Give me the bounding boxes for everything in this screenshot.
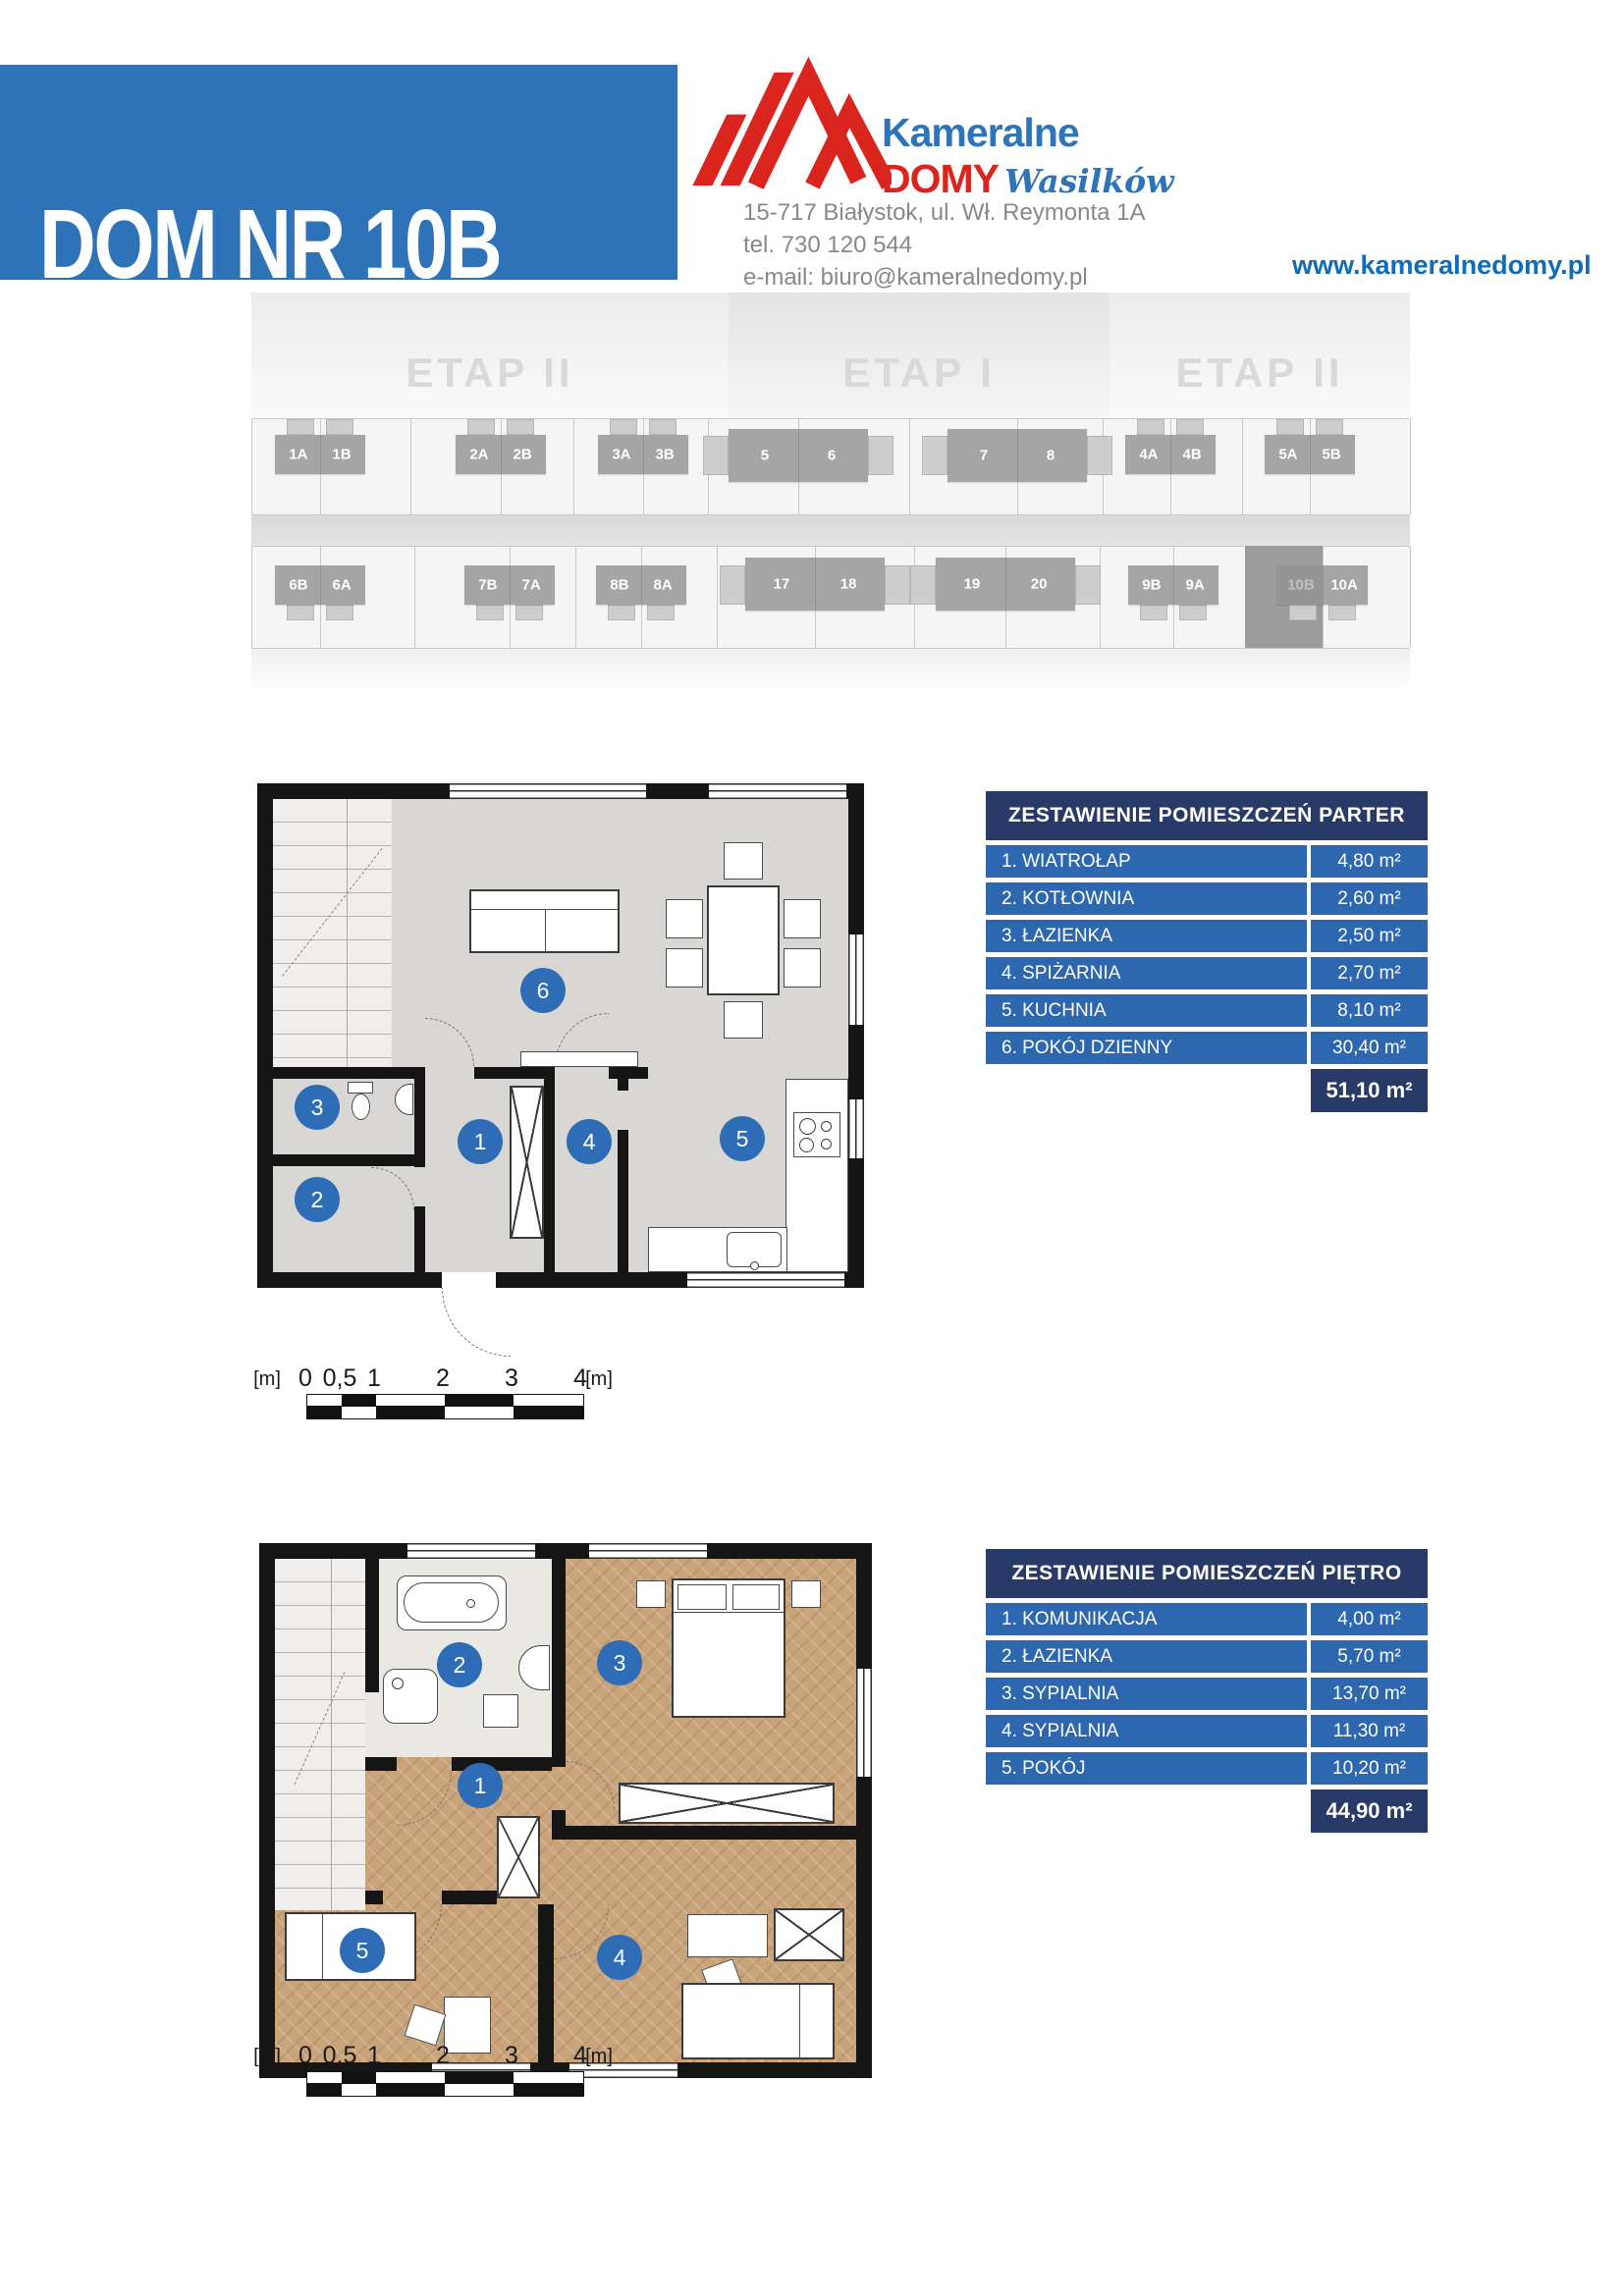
garage xyxy=(868,436,893,475)
wall xyxy=(552,1810,566,1840)
burner xyxy=(799,1138,814,1152)
garage xyxy=(885,565,910,605)
house-divider xyxy=(320,565,321,605)
scale-tick-label: 2 xyxy=(436,2042,450,2070)
plot-boundary-line xyxy=(251,418,1410,419)
house-7-8: 78 xyxy=(947,429,1087,482)
stage-label-etap-ii: ETAP II xyxy=(406,349,573,397)
room-table-pietro: ZESTAWIENIE POMIESZCZEŃ PIĘTRO 1. KOMUNI… xyxy=(986,1549,1428,1833)
room-number-badge: 3 xyxy=(295,1085,340,1130)
room-number-badge: 4 xyxy=(597,1935,642,1980)
house-19-20: 1920 xyxy=(936,558,1075,611)
nightstand xyxy=(791,1580,821,1608)
unit-label-8B: 8B xyxy=(610,577,628,594)
wall xyxy=(442,1891,497,1904)
desk xyxy=(687,1914,768,1957)
garage xyxy=(326,419,353,435)
unit-label-6: 6 xyxy=(828,448,836,464)
table-row: 1. WIATROŁAP4,80 m² xyxy=(986,845,1428,878)
house-9B-9A: 9B9A xyxy=(1128,565,1218,605)
logo-brand-top: Kameralne xyxy=(882,110,1174,156)
logo-domy: DOMY xyxy=(882,156,999,201)
garage xyxy=(647,605,675,620)
garage xyxy=(1176,419,1204,435)
staircase xyxy=(273,799,392,1067)
garage xyxy=(287,419,314,435)
scale-tick-label: 0,5 xyxy=(323,1364,357,1393)
sofa-cushion-line xyxy=(545,909,546,951)
garage xyxy=(1316,419,1343,435)
garage xyxy=(1328,605,1356,620)
chair xyxy=(724,1001,763,1039)
wall xyxy=(618,1130,628,1272)
room-name: 3. ŁAZIENKA xyxy=(986,920,1307,952)
unit-label-5A: 5A xyxy=(1278,447,1297,463)
scale-unit-label: [m] xyxy=(253,1368,281,1391)
faucet xyxy=(750,1261,759,1270)
garage xyxy=(1179,605,1207,620)
room-number-badge: 6 xyxy=(520,968,566,1013)
scale-bar-segment xyxy=(514,2084,583,2096)
sofa xyxy=(469,889,620,953)
plot-line xyxy=(414,546,415,648)
plot-line xyxy=(410,418,411,514)
plot-boundary-line xyxy=(251,648,1410,649)
table-parter-title: ZESTAWIENIE POMIESZCZEŃ PARTER xyxy=(986,791,1428,840)
wall xyxy=(259,1543,872,1559)
garage xyxy=(649,419,677,435)
plot-line xyxy=(1410,546,1411,648)
floor-plan-pietro xyxy=(259,1543,872,2078)
window xyxy=(848,934,864,1025)
plot-line xyxy=(575,546,576,648)
burner xyxy=(799,1118,816,1135)
scale-bar-segment xyxy=(342,2084,376,2096)
plot-line xyxy=(909,418,910,514)
tv-cabinet xyxy=(520,1051,638,1067)
garage xyxy=(1289,605,1317,620)
room-area: 2,50 m² xyxy=(1311,920,1428,952)
scale-bar-segment xyxy=(514,1407,583,1418)
unit-label-20: 20 xyxy=(1031,576,1048,593)
table-row: 2. KOTŁOWNIA2,60 m² xyxy=(986,882,1428,915)
room-name: 1. KOMUNIKACJA xyxy=(986,1603,1307,1635)
table-row: 5. POKÓJ10,20 m² xyxy=(986,1752,1428,1785)
nightstand xyxy=(636,1580,666,1608)
plots-fade xyxy=(251,648,1410,693)
scale-bar-row xyxy=(306,2083,584,2097)
room-number-badge: 5 xyxy=(720,1116,765,1161)
unit-label-8: 8 xyxy=(1047,448,1055,464)
plot-line xyxy=(251,418,252,514)
house-divider xyxy=(1170,435,1171,474)
room-number-badge: 1 xyxy=(458,1763,503,1808)
wall xyxy=(609,1067,648,1079)
table-row: 3. ŁAZIENKA2,50 m² xyxy=(986,920,1428,952)
unit-label-10A: 10A xyxy=(1330,577,1358,594)
scale-tick-label: 3 xyxy=(505,1364,518,1393)
unit-label-7A: 7A xyxy=(521,577,540,594)
page-title: DOM NR 10B xyxy=(39,188,500,301)
garage xyxy=(1276,419,1304,435)
roof-logo-icon xyxy=(687,37,892,202)
wall xyxy=(544,1079,555,1272)
stage-label-etap-ii: ETAP II xyxy=(1175,349,1343,397)
room-area: 8,10 m² xyxy=(1311,994,1428,1027)
room-number-badge: 1 xyxy=(458,1119,503,1164)
scale-unit-label: [m] xyxy=(585,2046,613,2068)
house-5A-5B: 5A5B xyxy=(1265,435,1355,474)
room-number-badge: 3 xyxy=(597,1640,642,1685)
garage xyxy=(922,436,947,475)
unit-label-18: 18 xyxy=(840,576,857,593)
house-divider xyxy=(510,565,511,605)
scale-bar-segment xyxy=(376,1407,445,1418)
room-area: 2,60 m² xyxy=(1311,882,1428,915)
scale-bar-segment xyxy=(307,2084,342,2096)
room-name: 5. KUCHNIA xyxy=(986,994,1307,1027)
unit-label-1B: 1B xyxy=(332,447,351,463)
wall xyxy=(365,1559,379,1692)
window xyxy=(589,1543,707,1559)
garage xyxy=(515,605,543,620)
chair xyxy=(784,899,821,938)
room-number-badge: 2 xyxy=(437,1642,482,1687)
scale-bar-segment xyxy=(445,1407,514,1418)
room-number-badge: 5 xyxy=(340,1928,385,1973)
pillow xyxy=(732,1584,780,1610)
stair-cut-line xyxy=(282,848,382,976)
garage xyxy=(910,565,936,605)
stair-divider xyxy=(331,1559,332,1910)
wall xyxy=(259,1543,275,2078)
phone-line: tel. 730 120 544 xyxy=(743,229,1146,261)
house-divider xyxy=(798,429,799,482)
chair xyxy=(724,842,763,880)
house-divider xyxy=(1323,565,1324,605)
plot-line xyxy=(573,418,574,514)
garage xyxy=(287,605,314,620)
table-row: 4. SPIŻARNIA2,70 m² xyxy=(986,957,1428,989)
washing-machine xyxy=(483,1694,518,1728)
unit-label-6B: 6B xyxy=(289,577,307,594)
plot-line xyxy=(717,546,718,648)
stair-divider xyxy=(347,799,348,1067)
garage xyxy=(326,605,353,620)
toilet-tank xyxy=(348,1082,373,1094)
scale-tick-label: 1 xyxy=(367,1364,381,1393)
table-row: 1. KOMUNIKACJA4,00 m² xyxy=(986,1603,1428,1635)
plot-line xyxy=(1410,418,1411,514)
unit-label-17: 17 xyxy=(774,576,790,593)
wall xyxy=(414,1206,425,1272)
room-name: 1. WIATROŁAP xyxy=(986,845,1307,878)
scale-tick-label: 0 xyxy=(298,2042,312,2070)
window xyxy=(856,1669,872,1777)
unit-label-2A: 2A xyxy=(469,447,488,463)
window xyxy=(848,1099,864,1158)
logo-text: Kameralne DOMYWasilków xyxy=(882,110,1174,202)
wardrobe xyxy=(774,1908,844,1961)
room-name: 6. POKÓJ DZIENNY xyxy=(986,1032,1307,1064)
room-number-badge: 4 xyxy=(567,1119,612,1164)
wall xyxy=(538,1904,554,2062)
unit-label-5: 5 xyxy=(761,448,769,464)
entrance-opening xyxy=(442,1272,496,1288)
window xyxy=(709,783,846,799)
room-name: 4. SPIŻARNIA xyxy=(986,957,1307,989)
room-area: 11,30 m² xyxy=(1311,1715,1428,1747)
house-17-18: 1718 xyxy=(745,558,885,611)
logo-city-script: Wasilków xyxy=(1004,162,1174,200)
unit-label-4B: 4B xyxy=(1182,447,1201,463)
bathtub-inner xyxy=(404,1582,499,1623)
toilet-bowl xyxy=(352,1094,370,1120)
wall xyxy=(848,783,864,1288)
house-8B-8A: 8B8A xyxy=(596,565,686,605)
garage xyxy=(1140,605,1167,620)
staircase xyxy=(275,1559,365,1910)
unit-label-3A: 3A xyxy=(612,447,630,463)
unit-label-9B: 9B xyxy=(1142,577,1161,594)
unit-label-3B: 3B xyxy=(655,447,674,463)
unit-label-1A: 1A xyxy=(289,447,307,463)
kitchen-counter xyxy=(785,1079,848,1272)
house-4A-4B: 4A4B xyxy=(1125,435,1216,474)
table-row: 4. SYPIALNIA11,30 m² xyxy=(986,1715,1428,1747)
room-name: 3. SYPIALNIA xyxy=(986,1678,1307,1710)
wall xyxy=(474,1067,555,1079)
scale-bar-segment xyxy=(445,2084,514,2096)
house-divider xyxy=(815,558,816,611)
room-area: 30,40 m² xyxy=(1311,1032,1428,1064)
stove xyxy=(793,1112,840,1157)
house-divider xyxy=(641,565,642,605)
unit-label-4A: 4A xyxy=(1139,447,1158,463)
unit-label-8A: 8A xyxy=(653,577,672,594)
house-5-6: 56 xyxy=(729,429,868,482)
scale-tick-label: 0 xyxy=(298,1364,312,1393)
logo-brand-bottom: DOMYWasilków xyxy=(882,156,1174,202)
scale-bar-row xyxy=(306,1406,584,1419)
house-1A-1B: 1A1B xyxy=(275,435,365,474)
chair xyxy=(666,948,703,988)
wall xyxy=(257,783,273,1288)
stage-label-etap-i: ETAP I xyxy=(842,349,995,397)
scale-bar-segment xyxy=(376,2084,445,2096)
wall xyxy=(365,1757,397,1771)
email-line: e-mail: biuro@kameralnedomy.pl xyxy=(743,261,1146,294)
table-parter-total: 51,10 m² xyxy=(1311,1069,1428,1112)
bed-line xyxy=(674,1612,784,1613)
title-banner: DOM NR 10B xyxy=(0,65,677,280)
floor-plan-parter xyxy=(257,783,864,1288)
window xyxy=(687,1272,844,1288)
table-row: 6. POKÓJ DZIENNY30,40 m² xyxy=(986,1032,1428,1064)
window xyxy=(407,1543,535,1559)
scale-bar: [m]00,51234[m] xyxy=(245,1364,628,1419)
plot-boundary-line xyxy=(251,546,1410,547)
chair xyxy=(784,948,821,988)
chair xyxy=(666,899,703,938)
house-7B-7A: 7B7A xyxy=(464,565,555,605)
scale-tick-label: 0,5 xyxy=(323,2042,357,2070)
room-name: 4. SYPIALNIA xyxy=(986,1715,1307,1747)
house-divider xyxy=(1310,435,1311,474)
scale-tick-label: 3 xyxy=(505,2042,518,2070)
company-address: 15-717 Białystok, ul. Wł. Reymonta 1A te… xyxy=(743,196,1146,294)
house-divider xyxy=(1005,558,1006,611)
room-name: 2. KOTŁOWNIA xyxy=(986,882,1307,915)
room-table-parter: ZESTAWIENIE POMIESZCZEŃ PARTER 1. WIATRO… xyxy=(986,791,1428,1112)
room-area: 5,70 m² xyxy=(1311,1640,1428,1673)
single-bed xyxy=(681,1983,835,2059)
scale-tick-label: 2 xyxy=(436,1364,450,1393)
garage xyxy=(1137,419,1164,435)
road xyxy=(251,514,1410,546)
house-3A-3B: 3A3B xyxy=(598,435,688,474)
room-area: 13,70 m² xyxy=(1311,1678,1428,1710)
room-name: 2. ŁAZIENKA xyxy=(986,1640,1307,1673)
house-6B-6A: 6B6A xyxy=(275,565,365,605)
wardrobe xyxy=(497,1816,540,1898)
table-pietro-title: ZESTAWIENIE POMIESZCZEŃ PIĘTRO xyxy=(986,1549,1428,1598)
house-divider xyxy=(501,435,502,474)
wall xyxy=(414,1079,425,1167)
house-divider xyxy=(643,435,644,474)
wall xyxy=(273,1154,414,1166)
shower-drain xyxy=(392,1678,404,1689)
room-area: 4,80 m² xyxy=(1311,845,1428,878)
shower xyxy=(383,1669,438,1724)
burner xyxy=(821,1139,832,1149)
garage xyxy=(467,419,495,435)
unit-label-5B: 5B xyxy=(1322,447,1340,463)
garage xyxy=(1087,436,1112,475)
dining-table xyxy=(707,885,780,995)
room-area: 10,20 m² xyxy=(1311,1752,1428,1785)
unit-label-9A: 9A xyxy=(1185,577,1204,594)
house-10B-10A: 10B10A xyxy=(1277,565,1368,605)
table-row: 5. KUCHNIA8,10 m² xyxy=(986,994,1428,1027)
house-2A-2B: 2A2B xyxy=(456,435,546,474)
unit-label-7: 7 xyxy=(980,448,988,464)
wall xyxy=(552,1559,566,1767)
company-logo: Kameralne DOMYWasilków xyxy=(687,37,1110,214)
unit-label-7B: 7B xyxy=(478,577,497,594)
table-row: 2. ŁAZIENKA5,70 m² xyxy=(986,1640,1428,1673)
entrance-door-arc xyxy=(442,1288,511,1357)
room-area: 2,70 m² xyxy=(1311,957,1428,989)
house-highlight-overlay xyxy=(1277,565,1323,605)
house-divider xyxy=(1173,565,1174,605)
scale-unit-label: [m] xyxy=(253,2046,281,2068)
wall xyxy=(618,1079,628,1091)
plot-line xyxy=(251,546,252,648)
stair-cut-line xyxy=(295,1672,346,1785)
window xyxy=(450,783,646,799)
unit-label-2B: 2B xyxy=(513,447,531,463)
table-row: 3. SYPIALNIA13,70 m² xyxy=(986,1678,1428,1710)
unit-label-6A: 6A xyxy=(332,577,351,594)
wardrobe xyxy=(619,1783,835,1824)
plot-boundary-line xyxy=(251,514,1410,515)
room-number-badge: 2 xyxy=(295,1177,340,1222)
unit-label-19: 19 xyxy=(964,576,981,593)
address-line: 15-717 Białystok, ul. Wł. Reymonta 1A xyxy=(743,196,1146,229)
house-divider xyxy=(1017,429,1018,482)
bed-line xyxy=(322,1914,323,1979)
burner xyxy=(821,1121,832,1132)
garage xyxy=(720,565,745,605)
website-link: www.kameralnedomy.pl xyxy=(1292,250,1567,281)
wall xyxy=(856,1543,872,2078)
plot-line xyxy=(1242,418,1243,514)
table-pietro-total: 44,90 m² xyxy=(1311,1789,1428,1833)
garage xyxy=(1075,565,1101,605)
room-name: 5. POKÓJ xyxy=(986,1752,1307,1785)
wardrobe xyxy=(510,1086,544,1239)
bed-line xyxy=(799,1985,800,2057)
garage xyxy=(507,419,534,435)
garage xyxy=(703,436,729,475)
wall xyxy=(365,1891,383,1904)
garage xyxy=(608,605,635,620)
scale-bar-segment xyxy=(307,1407,342,1418)
bathtub xyxy=(397,1575,507,1630)
scale-tick-label: 1 xyxy=(367,2042,381,2070)
scale-unit-label: [m] xyxy=(585,1368,613,1391)
garage xyxy=(476,605,504,620)
garage xyxy=(610,419,637,435)
room-area: 4,00 m² xyxy=(1311,1603,1428,1635)
house-divider xyxy=(320,435,321,474)
wall xyxy=(273,1067,425,1079)
wall xyxy=(566,1826,856,1840)
scale-bar: [m]00,51234[m] xyxy=(245,2042,628,2097)
scale-bar-segment xyxy=(342,1407,376,1418)
bathtub-drain xyxy=(466,1599,475,1608)
pillow xyxy=(677,1584,727,1610)
